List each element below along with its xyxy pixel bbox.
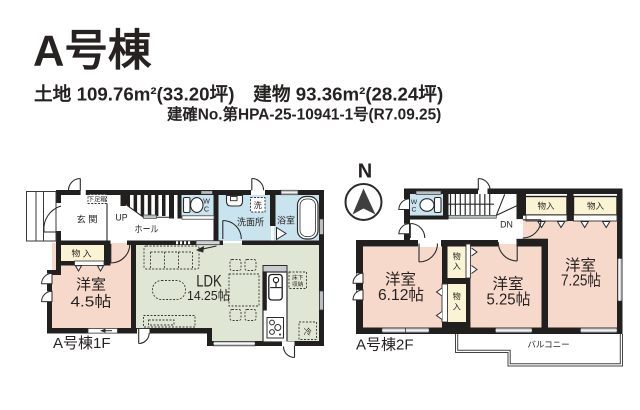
svg-text:5.25帖: 5.25帖 — [487, 291, 531, 309]
svg-text:収納: 収納 — [292, 280, 304, 288]
svg-text:7.25帖: 7.25帖 — [561, 272, 601, 290]
svg-text:玄 関: 玄 関 — [77, 214, 98, 225]
svg-text:洗面所: 洗面所 — [237, 217, 264, 229]
svg-text:下足箱: 下足箱 — [88, 196, 107, 204]
svg-text:洋室: 洋室 — [385, 271, 416, 289]
svg-text:洋室: 洋室 — [76, 277, 106, 294]
svg-text:建確No.第HPA-25-10941-1号(R7.09.25: 建確No.第HPA-25-10941-1号(R7.09.25) — [167, 105, 441, 124]
svg-text:バルコニー: バルコニー — [527, 340, 569, 350]
svg-text:物 入: 物 入 — [71, 247, 91, 258]
svg-text:ホール: ホール — [135, 225, 159, 236]
svg-text:A号棟2F: A号棟2F — [356, 337, 414, 354]
svg-text:物入: 物入 — [537, 201, 555, 211]
svg-text:物入: 物入 — [587, 201, 605, 211]
svg-text:14.25帖: 14.25帖 — [187, 288, 230, 303]
svg-text:N: N — [358, 161, 372, 183]
svg-text:UP: UP — [115, 213, 127, 223]
svg-text:土地 109.76m²(33.20坪) 建物 93.36m²: 土地 109.76m²(33.20坪) 建物 93.36m²(28.24坪) — [34, 84, 443, 105]
svg-text:入: 入 — [453, 262, 461, 271]
svg-text:浴室: 浴室 — [277, 214, 295, 225]
svg-text:床下: 床下 — [292, 274, 304, 282]
svg-text:4.5帖: 4.5帖 — [71, 294, 112, 311]
svg-text:洋室: 洋室 — [492, 275, 523, 293]
svg-text:冷: 冷 — [304, 327, 312, 337]
svg-text:洗: 洗 — [254, 200, 262, 210]
svg-text:入: 入 — [453, 303, 461, 312]
svg-text:A号棟: A号棟 — [33, 28, 152, 76]
svg-text:W: W — [411, 199, 418, 206]
svg-text:6.12帖: 6.12帖 — [378, 286, 424, 304]
svg-text:物: 物 — [453, 291, 461, 301]
svg-text:DN: DN — [500, 220, 513, 230]
svg-text:C: C — [412, 207, 417, 214]
svg-text:物: 物 — [453, 251, 461, 261]
svg-text:C: C — [204, 205, 209, 214]
svg-text:A号棟1F: A号棟1F — [53, 335, 111, 352]
